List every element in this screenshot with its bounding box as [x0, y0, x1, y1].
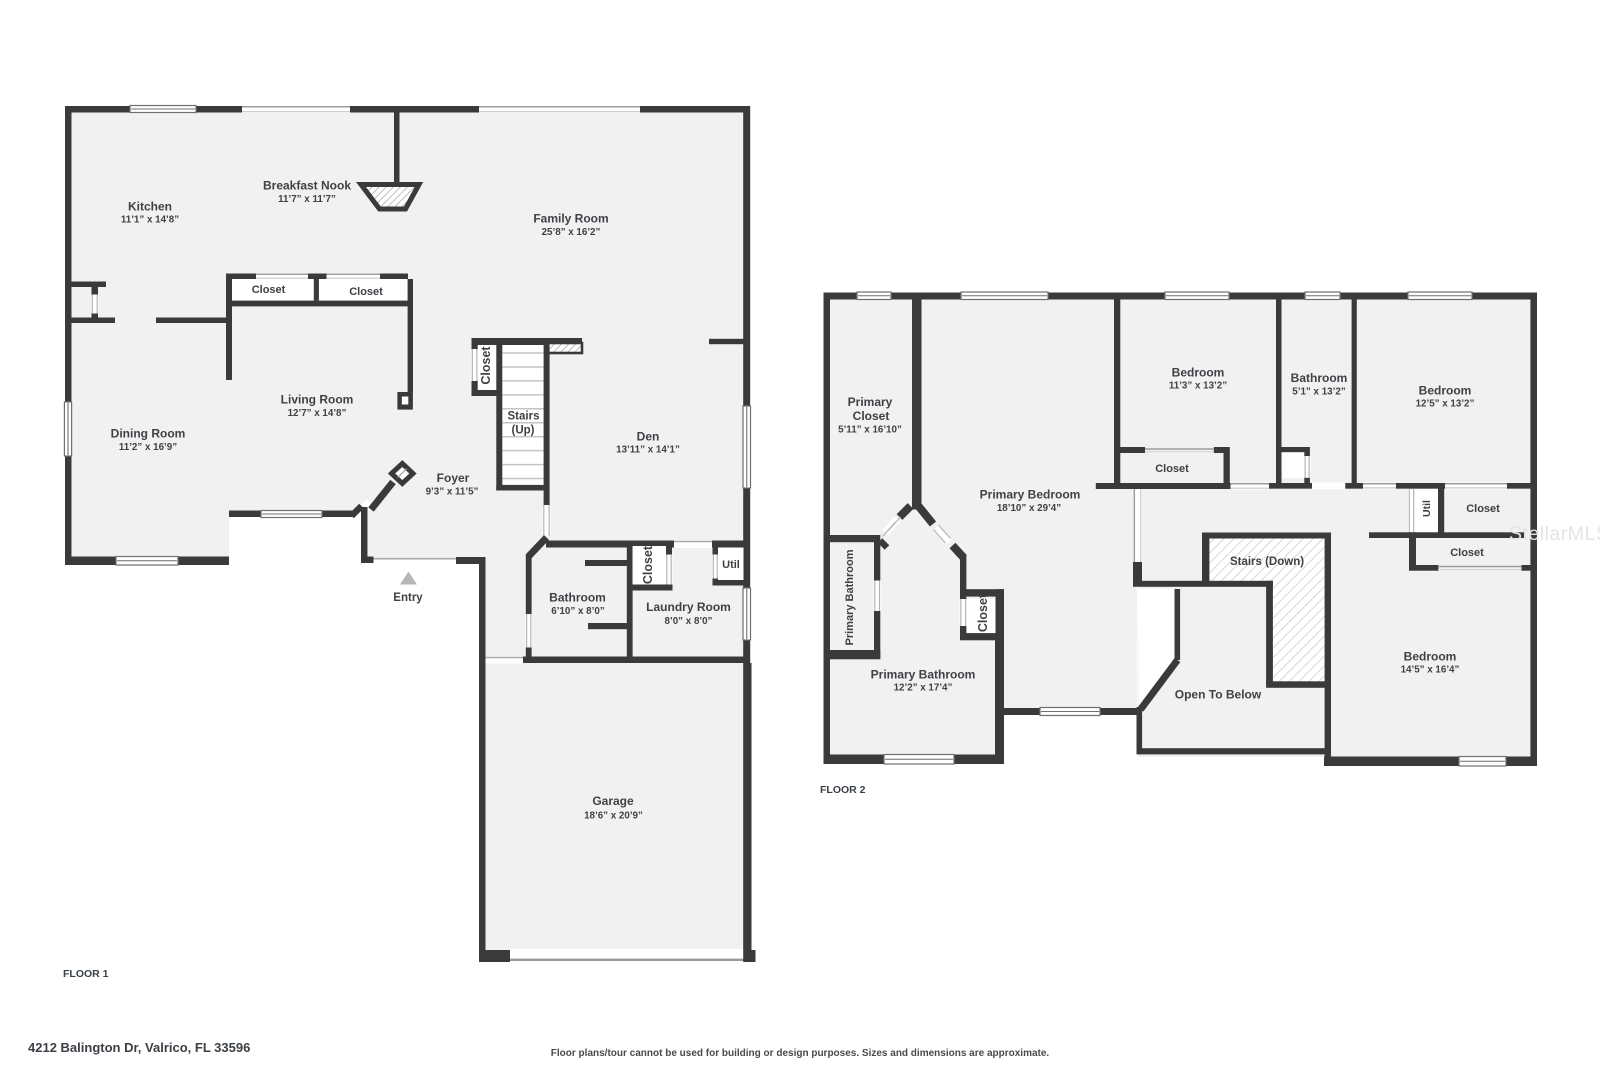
svg-text:Bathroom: Bathroom	[549, 591, 606, 605]
svg-text:Closet: Closet	[1155, 463, 1189, 475]
svg-text:11’3” x 13’2”: 11’3” x 13’2”	[1169, 381, 1227, 392]
svg-text:Primary Bedroom: Primary Bedroom	[980, 488, 1081, 502]
svg-text:8’0” x 8’0”: 8’0” x 8’0”	[665, 616, 713, 627]
svg-text:18’10” x 29’4”: 18’10” x 29’4”	[997, 503, 1061, 514]
svg-text:Util: Util	[722, 559, 740, 571]
svg-text:Den: Den	[637, 430, 660, 444]
svg-text:5’1” x 13’2”: 5’1” x 13’2”	[1292, 387, 1345, 398]
svg-text:StellarMLS: StellarMLS	[1509, 523, 1600, 545]
svg-text:Stairs: Stairs	[508, 411, 540, 423]
svg-text:Closet: Closet	[976, 593, 990, 632]
svg-text:Stairs (Down): Stairs (Down)	[1230, 556, 1304, 568]
svg-text:4212 Balington Dr, Valrico, FL: 4212 Balington Dr, Valrico, FL 33596	[28, 1040, 250, 1055]
svg-text:Util: Util	[1421, 500, 1433, 517]
svg-text:Garage: Garage	[592, 794, 634, 808]
svg-text:Floor plans/tour cannot be use: Floor plans/tour cannot be used for buil…	[551, 1048, 1050, 1059]
svg-text:Family Room: Family Room	[533, 212, 608, 226]
svg-text:Bedroom: Bedroom	[1404, 650, 1457, 664]
svg-text:Living Room: Living Room	[281, 393, 354, 407]
svg-text:Open To Below: Open To Below	[1175, 688, 1262, 702]
svg-text:(Up): (Up)	[512, 425, 535, 437]
svg-text:Laundry Room: Laundry Room	[646, 600, 731, 614]
svg-text:Primary: Primary	[848, 395, 893, 409]
svg-text:Closet: Closet	[853, 409, 890, 423]
svg-text:14’5” x 16’4”: 14’5” x 16’4”	[1401, 665, 1460, 676]
svg-text:Closet: Closet	[479, 346, 493, 385]
svg-text:18’6” x 20’9”: 18’6” x 20’9”	[584, 811, 643, 822]
svg-text:11’2” x 16’9”: 11’2” x 16’9”	[119, 442, 177, 453]
svg-text:FLOOR 1: FLOOR 1	[63, 968, 109, 980]
svg-text:Closet: Closet	[349, 286, 383, 298]
svg-text:11’7” x 11’7”: 11’7” x 11’7”	[278, 194, 336, 205]
svg-text:Breakfast Nook: Breakfast Nook	[263, 179, 351, 193]
svg-text:Primary Bathroom: Primary Bathroom	[844, 549, 856, 645]
svg-text:Dining Room: Dining Room	[111, 427, 186, 441]
svg-text:13’11” x 14’1”: 13’11” x 14’1”	[616, 445, 680, 456]
svg-text:Kitchen: Kitchen	[128, 200, 172, 214]
svg-text:9’3” x 11’5”: 9’3” x 11’5”	[426, 487, 479, 498]
svg-text:Closet: Closet	[641, 545, 655, 584]
svg-text:Foyer: Foyer	[437, 471, 470, 485]
svg-text:12’5” x 13’2”: 12’5” x 13’2”	[1416, 399, 1475, 410]
svg-text:Bedroom: Bedroom	[1419, 384, 1472, 398]
svg-text:FLOOR 2: FLOOR 2	[820, 784, 866, 796]
svg-text:5’11” x 16’10”: 5’11” x 16’10”	[838, 425, 902, 436]
svg-text:Bedroom: Bedroom	[1172, 366, 1225, 380]
svg-text:Entry: Entry	[393, 592, 423, 604]
svg-text:Primary Bathroom: Primary Bathroom	[871, 668, 976, 682]
svg-text:11’1” x 14’8”: 11’1” x 14’8”	[121, 215, 179, 226]
svg-text:12’2” x 17’4”: 12’2” x 17’4”	[894, 683, 953, 694]
svg-text:12’7” x 14’8”: 12’7” x 14’8”	[288, 408, 347, 419]
svg-text:Bathroom: Bathroom	[1291, 371, 1348, 385]
svg-text:25’8” x 16’2”: 25’8” x 16’2”	[542, 227, 601, 238]
svg-text:6’10” x 8’0”: 6’10” x 8’0”	[551, 606, 604, 617]
svg-text:Closet: Closet	[252, 284, 286, 296]
svg-text:Closet: Closet	[1450, 547, 1484, 559]
svg-text:Closet: Closet	[1466, 503, 1500, 515]
